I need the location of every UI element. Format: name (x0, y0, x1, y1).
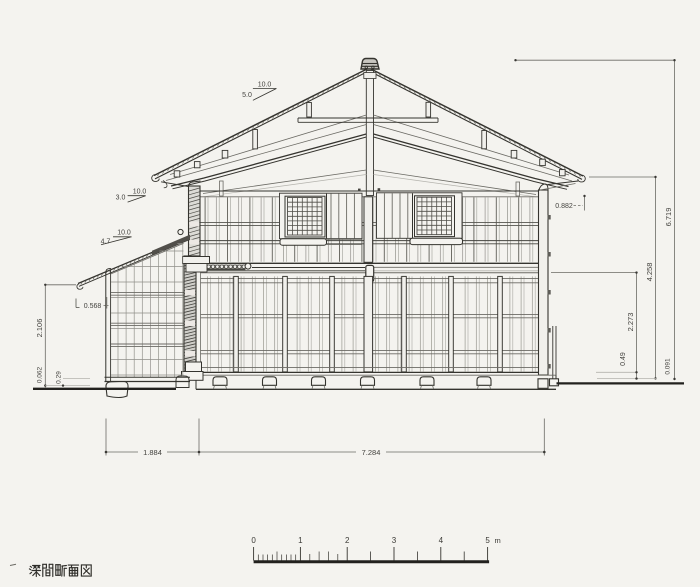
svg-text:0.568: 0.568 (84, 303, 102, 310)
svg-text:0: 0 (251, 536, 256, 545)
svg-text:0.091: 0.091 (665, 358, 672, 375)
svg-text:10.0: 10.0 (117, 230, 131, 237)
svg-text:0.29: 0.29 (56, 371, 63, 384)
svg-text:3.0: 3.0 (116, 195, 126, 202)
svg-text:2.106: 2.106 (35, 319, 44, 338)
svg-text:4.7: 4.7 (101, 239, 111, 246)
svg-text:3: 3 (392, 536, 397, 545)
svg-text:2: 2 (345, 536, 350, 545)
svg-text:0.882: 0.882 (555, 203, 573, 210)
svg-text:m: m (494, 536, 500, 545)
svg-text:10.0: 10.0 (258, 82, 272, 89)
svg-text:2.273: 2.273 (626, 313, 635, 332)
svg-text:1: 1 (298, 536, 303, 545)
svg-text:4: 4 (439, 536, 444, 545)
svg-text:1.884: 1.884 (143, 448, 162, 457)
svg-text:4.258: 4.258 (645, 263, 654, 282)
svg-text:7.284: 7.284 (362, 448, 381, 457)
svg-text:0.49: 0.49 (620, 352, 627, 366)
svg-text:0.062: 0.062 (37, 366, 44, 383)
svg-text:5.0: 5.0 (242, 92, 252, 99)
svg-text:10.0: 10.0 (133, 189, 147, 196)
svg-text:6.719: 6.719 (664, 208, 673, 227)
svg-text:5: 5 (485, 536, 490, 545)
